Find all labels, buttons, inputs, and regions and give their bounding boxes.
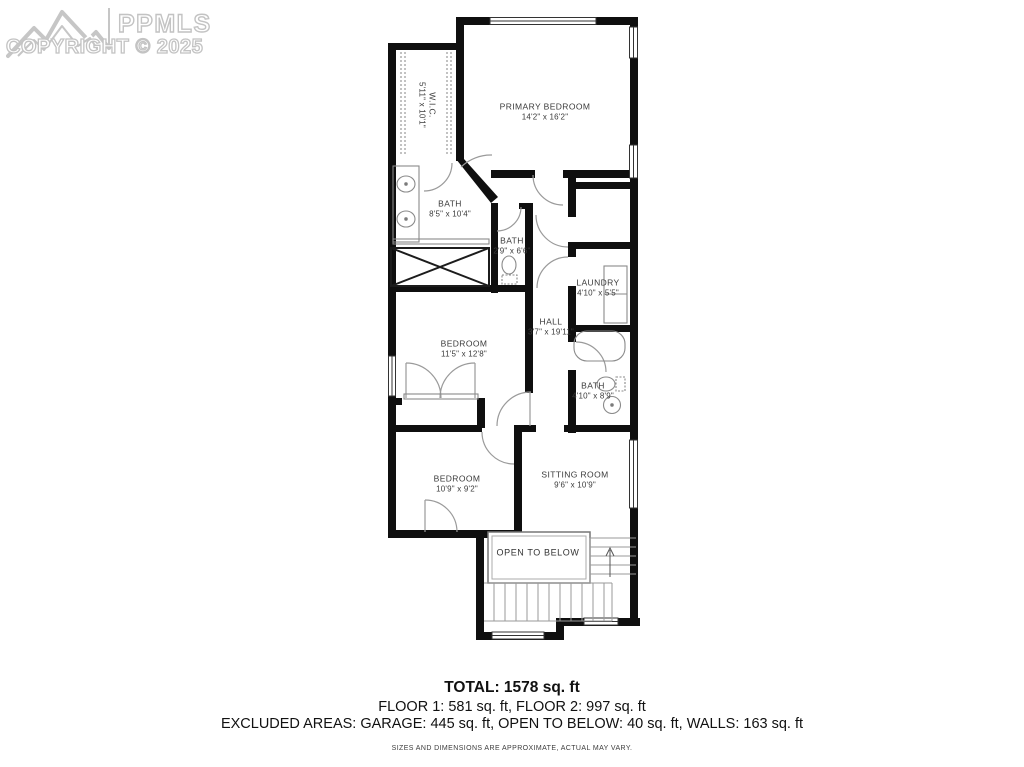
- stairs-layer: [484, 532, 636, 621]
- logo-copyright-text: COPYRIGHT © 2025: [6, 36, 203, 59]
- room-name: SITTING ROOM: [541, 470, 608, 481]
- room-dims: 3'7" x 19'11": [528, 327, 574, 337]
- floor-areas-text: FLOOR 1: 581 sq. ft, FLOOR 2: 997 sq. ft: [0, 699, 1024, 715]
- room-label-open-to-below: OPEN TO BELOW: [497, 547, 580, 558]
- room-name: BEDROOM: [434, 474, 481, 485]
- room-label-hall-bath: BATH 4'10" x 8'9": [572, 381, 614, 402]
- room-label-primary-bath: BATH 8'5" x 10'4": [429, 199, 471, 220]
- room-label-primary-bedroom: PRIMARY BEDROOM 14'2" x 16'2": [500, 102, 591, 123]
- ppmls-logo: PPMLS COPYRIGHT © 2025: [6, 4, 236, 66]
- room-dims: 5'11" x 10'1": [417, 82, 427, 128]
- room-name: HALL: [528, 317, 574, 328]
- room-name: BATH: [572, 381, 614, 392]
- room-dims: 10'9" x 9'2": [434, 484, 481, 494]
- floor-plan: PRIMARY BEDROOM 14'2" x 16'2" W.I.C. 5'1…: [385, 5, 643, 650]
- logo-brand-text: PPMLS: [118, 10, 212, 39]
- room-name: PRIMARY BEDROOM: [500, 102, 591, 113]
- room-name: LAUNDRY: [576, 278, 619, 289]
- room-dims: 14'2" x 16'2": [500, 112, 591, 122]
- room-dims: 4'10" x 8'9": [572, 391, 614, 401]
- room-dims: 11'5" x 12'8": [441, 349, 488, 359]
- room-name: BATH: [429, 199, 471, 210]
- total-area-text: TOTAL: 1578 sq. ft: [0, 679, 1024, 697]
- room-dims: 9'6" x 10'9": [541, 480, 608, 490]
- room-name: OPEN TO BELOW: [497, 547, 580, 558]
- room-dims: 2'9" x 6'6": [493, 246, 530, 256]
- room-label-laundry: LAUNDRY 4'10" x 5'5": [576, 278, 619, 299]
- excluded-areas-text: EXCLUDED AREAS: GARAGE: 445 sq. ft, OPEN…: [0, 716, 1024, 732]
- room-label-sitting-room: SITTING ROOM 9'6" x 10'9": [541, 470, 608, 491]
- room-label-small-bath: BATH 2'9" x 6'6": [493, 236, 530, 257]
- room-dims: 8'5" x 10'4": [429, 209, 471, 219]
- room-name: W.I.C.: [427, 82, 438, 128]
- room-label-hall: HALL 3'7" x 19'11": [528, 317, 574, 338]
- room-name: BEDROOM: [441, 339, 488, 350]
- area-summary: TOTAL: 1578 sq. ft FLOOR 1: 581 sq. ft, …: [0, 679, 1024, 752]
- room-name: BATH: [493, 236, 530, 247]
- room-label-wic: W.I.C. 5'11" x 10'1": [417, 82, 438, 128]
- disclaimer-text: SIZES AND DIMENSIONS ARE APPROXIMATE, AC…: [0, 745, 1024, 752]
- room-dims: 4'10" x 5'5": [576, 288, 619, 298]
- room-label-bedroom-mid: BEDROOM 11'5" x 12'8": [441, 339, 488, 360]
- room-label-bedroom-lower: BEDROOM 10'9" x 9'2": [434, 474, 481, 495]
